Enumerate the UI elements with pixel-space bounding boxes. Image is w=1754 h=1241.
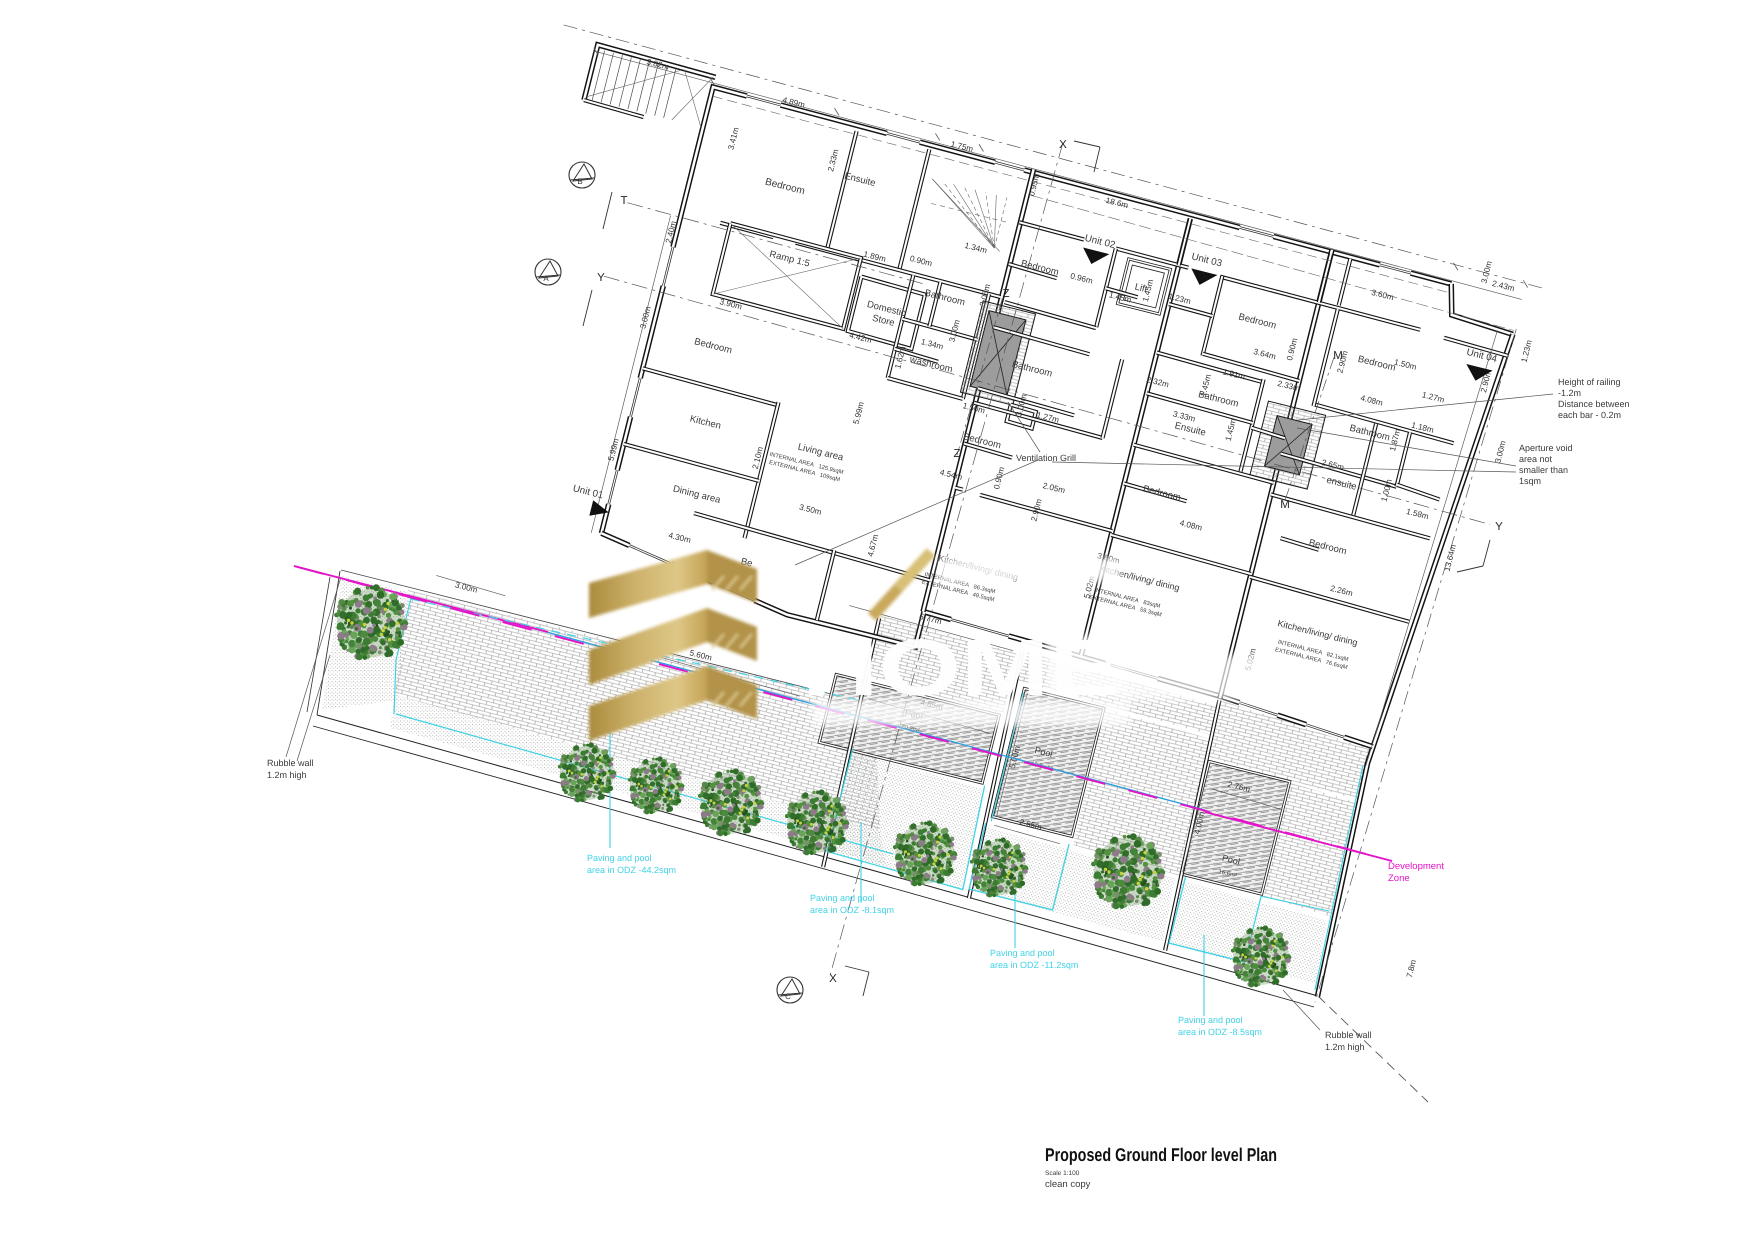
svg-text:A: A bbox=[543, 274, 549, 283]
svg-text:X: X bbox=[1059, 139, 1067, 151]
svg-text:each bar - 0.2m: each bar - 0.2m bbox=[1558, 410, 1621, 420]
svg-text:Zone: Zone bbox=[1388, 873, 1410, 884]
svg-text:Development: Development bbox=[1388, 861, 1444, 872]
svg-text:-1.2m: -1.2m bbox=[1558, 388, 1581, 398]
svg-text:1.2m high: 1.2m high bbox=[267, 770, 307, 780]
svg-text:T: T bbox=[620, 195, 627, 207]
svg-text:Paving and pool: Paving and pool bbox=[990, 948, 1055, 958]
svg-text:clean copy: clean copy bbox=[1045, 1179, 1091, 1190]
svg-text:Rubble wall: Rubble wall bbox=[267, 758, 314, 768]
svg-text:1.2m high: 1.2m high bbox=[1325, 1042, 1365, 1052]
svg-text:Z: Z bbox=[953, 448, 960, 460]
svg-text:Paving and pool: Paving and pool bbox=[587, 853, 652, 863]
svg-text:Paving and pool: Paving and pool bbox=[1178, 1015, 1243, 1025]
svg-text:Paving and pool: Paving and pool bbox=[810, 893, 875, 903]
svg-text:Height of railing: Height of railing bbox=[1558, 377, 1621, 387]
svg-text:area in ODZ -8.5sqm: area in ODZ -8.5sqm bbox=[1178, 1027, 1262, 1037]
svg-text:area in ODZ -11.2sqm: area in ODZ -11.2sqm bbox=[990, 960, 1078, 970]
svg-text:Distance between: Distance between bbox=[1558, 399, 1630, 409]
svg-text:M: M bbox=[1333, 350, 1343, 362]
svg-text:Rubble wall: Rubble wall bbox=[1325, 1030, 1372, 1040]
svg-text:1sqm: 1sqm bbox=[1519, 476, 1541, 486]
svg-text:Scale 1:100: Scale 1:100 bbox=[1045, 1170, 1080, 1177]
svg-text:M: M bbox=[1280, 499, 1290, 511]
svg-text:area in ODZ -44.2sqm: area in ODZ -44.2sqm bbox=[587, 865, 676, 875]
svg-text:Y: Y bbox=[1495, 521, 1503, 533]
svg-text:area not: area not bbox=[1519, 454, 1553, 464]
svg-text:smaller than: smaller than bbox=[1519, 465, 1568, 475]
svg-text:C: C bbox=[785, 992, 791, 1001]
svg-text:Ventilation Grill: Ventilation Grill bbox=[1016, 453, 1076, 463]
svg-text:Aperture void: Aperture void bbox=[1519, 443, 1573, 453]
svg-text:Z: Z bbox=[1002, 288, 1009, 300]
svg-text:Proposed Ground Floor level Pl: Proposed Ground Floor level Plan bbox=[1045, 1144, 1277, 1165]
svg-text:B: B bbox=[577, 177, 582, 186]
svg-text:X: X bbox=[829, 973, 837, 985]
svg-text:Y: Y bbox=[597, 272, 605, 284]
svg-text:area in ODZ -8.1sqm: area in ODZ -8.1sqm bbox=[810, 905, 894, 915]
